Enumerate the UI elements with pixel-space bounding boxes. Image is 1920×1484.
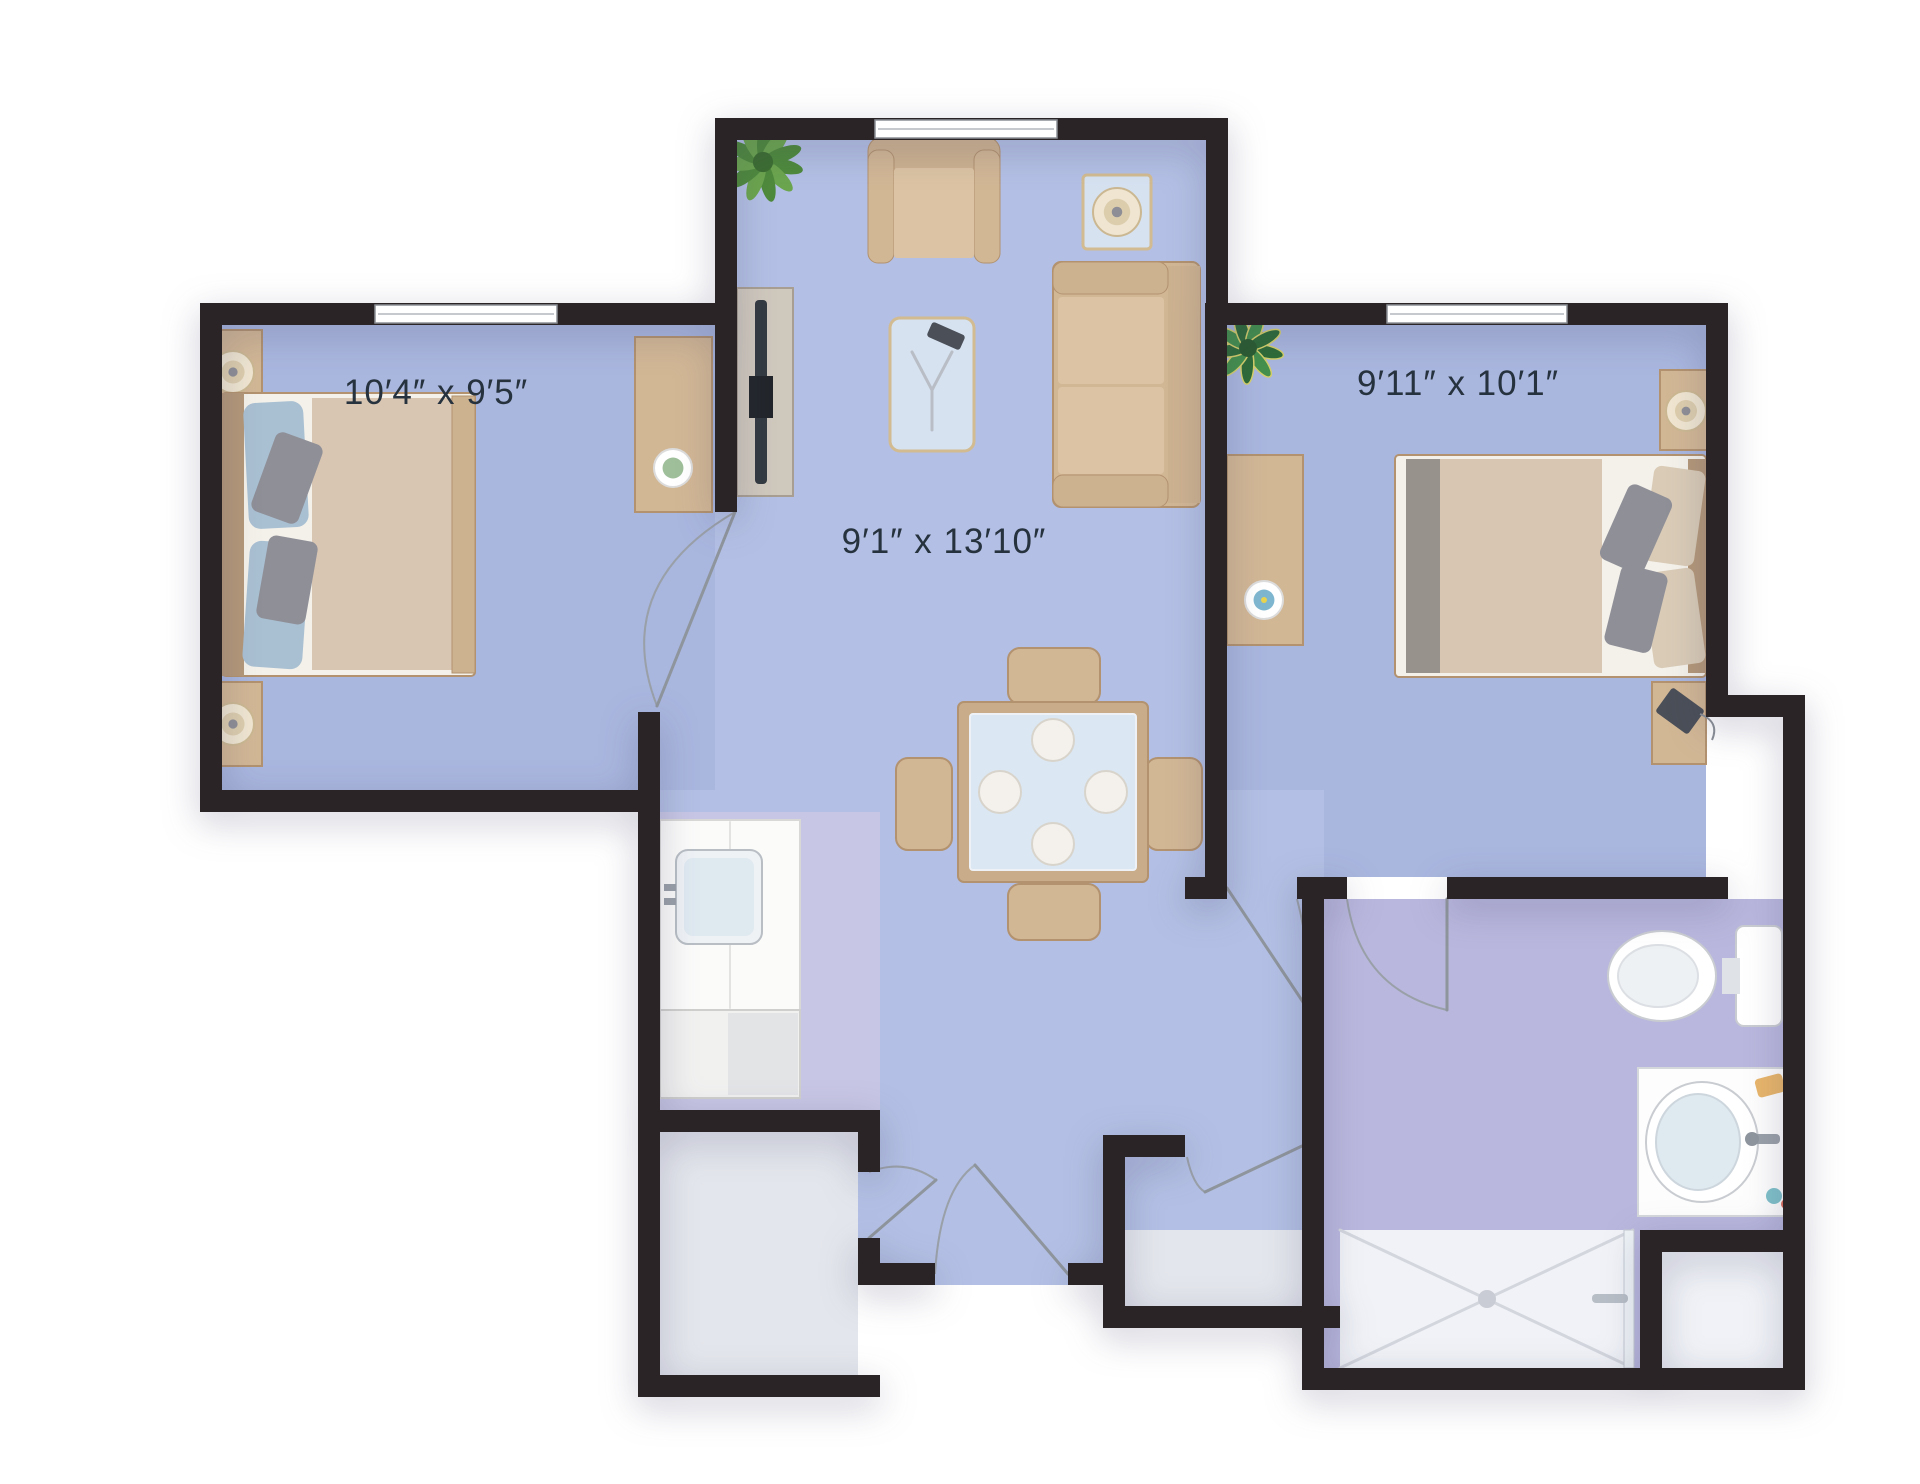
lamp-bedroom2-finial: [1682, 407, 1691, 416]
dining-chair-south: [1008, 884, 1100, 940]
window-bedroom-1: [375, 305, 557, 323]
floor-entry-tile: [1125, 1230, 1302, 1306]
bed1-duvet: [312, 398, 452, 670]
floor-plan-svg: 10′4″ x 9′5″ 9′1″ x 13′10″ 9′11″ x 10′1″: [0, 0, 1920, 1484]
plate-east: [1085, 771, 1127, 813]
armchair-arm-left: [868, 150, 894, 263]
wall-bathcloset-top: [1640, 1230, 1805, 1252]
wall-entrycloset-top: [1103, 1135, 1185, 1157]
wall-bathcloset-left: [1640, 1230, 1662, 1390]
wall-bedroom2-left: [1205, 303, 1227, 899]
toilet-seat: [1618, 945, 1698, 1007]
candle-dresser-bedroom1-body: [663, 458, 684, 479]
wall-entry-bottom-left: [858, 1263, 935, 1285]
lamp-side-table-finial: [1112, 207, 1123, 218]
armchair-arm-right: [974, 150, 1000, 263]
wall-closet-right-upper: [858, 1110, 880, 1172]
shower-drain: [1478, 1290, 1496, 1308]
bed1-headboard: [222, 393, 244, 676]
wall-kitchen-bottom: [638, 1110, 880, 1132]
bed2-foot-runner: [1406, 459, 1440, 673]
wall-closet-bottom: [638, 1375, 880, 1397]
sofa-cushion-1: [1058, 297, 1164, 384]
window-living: [875, 120, 1057, 138]
tv-mount: [749, 376, 773, 418]
vanity-faucet-base: [1745, 1132, 1759, 1146]
window-bedroom-2: [1387, 305, 1567, 323]
room-label-living-dining: 9′1″ x 13′10″: [842, 522, 1047, 561]
sofa-back: [1168, 266, 1200, 503]
room-label-bedroom-1: 10′4″ x 9′5″: [344, 373, 528, 412]
floor-plan: 10′4″ x 9′5″ 9′1″ x 13′10″ 9′11″ x 10′1″: [0, 0, 1920, 1484]
plate-west: [979, 771, 1021, 813]
lamp-bedroom2: [1666, 391, 1706, 431]
plate-south: [1032, 823, 1074, 865]
sofa-arm-bottom: [1053, 475, 1168, 507]
candle-dresser-bedroom1: [654, 449, 692, 487]
wall-bath-top-right: [1447, 877, 1728, 899]
sofa-arm-top: [1053, 262, 1168, 294]
wall-entrycloset-bottom: [1103, 1306, 1340, 1328]
candle-dresser-bedroom2: [1245, 581, 1283, 619]
bed2-duvet: [1440, 459, 1602, 673]
toilet-hinge: [1722, 958, 1740, 994]
kitchen-faucet-2: [664, 898, 676, 905]
bed1-footrail: [452, 396, 475, 673]
vanity-accessory-1: [1766, 1188, 1782, 1204]
candle-dresser-bedroom2-flame: [1261, 597, 1267, 603]
lamp-side-table: [1093, 188, 1141, 236]
sofa-cushion-2: [1058, 387, 1164, 474]
toilet-tank: [1736, 926, 1782, 1026]
lamp-bed1-top-finial: [228, 367, 237, 376]
wall-bedroom2-right: [1706, 303, 1728, 717]
vanity-sink-basin: [1656, 1094, 1740, 1190]
wall-bath-right: [1783, 695, 1805, 1390]
armchair-seat: [894, 168, 974, 258]
lamp-bed1-bottom-finial: [228, 719, 237, 728]
wall-kitchen-left: [638, 712, 660, 1397]
dining-chair-north: [1008, 648, 1100, 704]
kitchen-faucet-1: [664, 884, 676, 891]
wall-entrycloset-left: [1103, 1135, 1125, 1328]
dining-chair-east: [1146, 758, 1202, 850]
wall-bath-bottom: [1318, 1368, 1805, 1390]
dining-chair-west: [896, 758, 952, 850]
plant-bedroom2-center: [1239, 339, 1257, 357]
floor-closet-bath: [1662, 1252, 1783, 1368]
wall-living-right-upper: [1206, 118, 1228, 303]
wall-bath-top-mid: [1297, 877, 1347, 899]
kitchen-sink-basin: [684, 858, 754, 936]
room-label-bedroom-2: 9′11″ x 10′1″: [1357, 364, 1559, 403]
kitchen-stove-panel: [728, 1013, 798, 1095]
plant-living-center: [753, 152, 773, 172]
wall-bedroom1-left: [200, 303, 222, 812]
plate-north: [1032, 719, 1074, 761]
floor-closet-left: [660, 1132, 858, 1375]
wall-bedroom1-bottom: [200, 790, 660, 812]
shower-handle: [1592, 1294, 1628, 1303]
wall-bath-top-left: [1185, 877, 1227, 899]
